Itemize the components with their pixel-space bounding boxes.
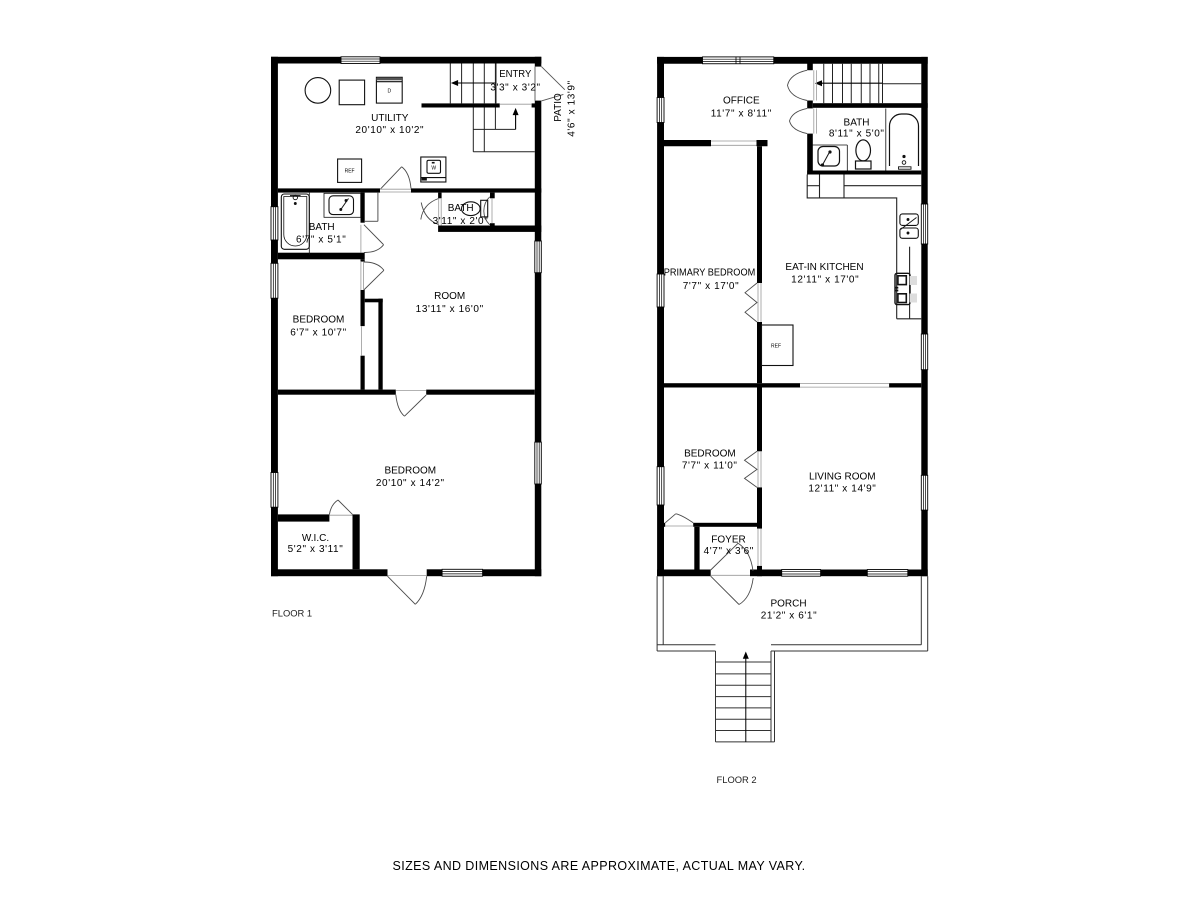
svg-text:FLOOR 2: FLOOR 2 (717, 774, 757, 785)
svg-text:12'11" x 17'0": 12'11" x 17'0" (791, 274, 859, 285)
svg-text:UTILITY: UTILITY (371, 113, 409, 124)
svg-text:21'2" x 6'1": 21'2" x 6'1" (761, 611, 817, 622)
svg-text:REF: REF (771, 344, 781, 350)
svg-text:BEDROOM: BEDROOM (384, 466, 436, 477)
svg-text:4'7" x 3'6": 4'7" x 3'6" (704, 546, 754, 557)
svg-text:ENTRY: ENTRY (499, 69, 531, 80)
svg-text:20'10" x 14'2": 20'10" x 14'2" (376, 478, 445, 489)
svg-text:PATIO: PATIO (553, 93, 564, 122)
svg-text:PORCH: PORCH (770, 599, 806, 610)
svg-text:5'2" x 3'11": 5'2" x 3'11" (288, 544, 344, 555)
svg-text:EAT-IN KITCHEN: EAT-IN KITCHEN (785, 262, 863, 273)
svg-text:8'11" x 5'0": 8'11" x 5'0" (829, 129, 885, 140)
svg-text:FOYER: FOYER (711, 534, 745, 545)
svg-text:20'10" x 10'2": 20'10" x 10'2" (355, 125, 424, 136)
svg-text:ROOM: ROOM (434, 291, 465, 302)
svg-text:3'3" x 3'2": 3'3" x 3'2" (490, 82, 540, 93)
svg-text:OFFICE: OFFICE (723, 96, 760, 107)
svg-text:11'7" x 8'11": 11'7" x 8'11" (711, 108, 772, 119)
svg-text:3'11" x 2'0": 3'11" x 2'0" (433, 216, 489, 227)
svg-text:13'11" x 16'0": 13'11" x 16'0" (416, 304, 484, 315)
svg-text:SIZES AND DIMENSIONS ARE APPRO: SIZES AND DIMENSIONS ARE APPROXIMATE, AC… (393, 859, 806, 873)
svg-text:BEDROOM: BEDROOM (684, 448, 736, 459)
svg-text:BEDROOM: BEDROOM (293, 314, 345, 325)
svg-text:6'7" x 5'1": 6'7" x 5'1" (296, 235, 346, 246)
svg-text:BATH: BATH (844, 118, 870, 129)
svg-text:BATH: BATH (309, 222, 335, 233)
svg-text:BATH: BATH (448, 203, 474, 214)
svg-text:7'7" x 17'0": 7'7" x 17'0" (683, 281, 739, 292)
svg-text:FLOOR 1: FLOOR 1 (272, 608, 312, 619)
svg-text:6'7" x 10'7": 6'7" x 10'7" (290, 327, 346, 338)
svg-text:12'11" x 14'9": 12'11" x 14'9" (808, 484, 876, 495)
svg-text:LIVING ROOM: LIVING ROOM (809, 472, 876, 483)
svg-text:W.I.C.: W.I.C. (302, 533, 329, 544)
svg-text:W: W (431, 166, 436, 172)
svg-text:D: D (387, 89, 391, 95)
svg-text:7'7" x 11'0": 7'7" x 11'0" (682, 460, 738, 471)
svg-text:REF: REF (345, 169, 355, 175)
svg-text:4'6" x 13'9": 4'6" x 13'9" (566, 80, 577, 136)
svg-text:PRIMARY BEDROOM: PRIMARY BEDROOM (664, 268, 756, 279)
